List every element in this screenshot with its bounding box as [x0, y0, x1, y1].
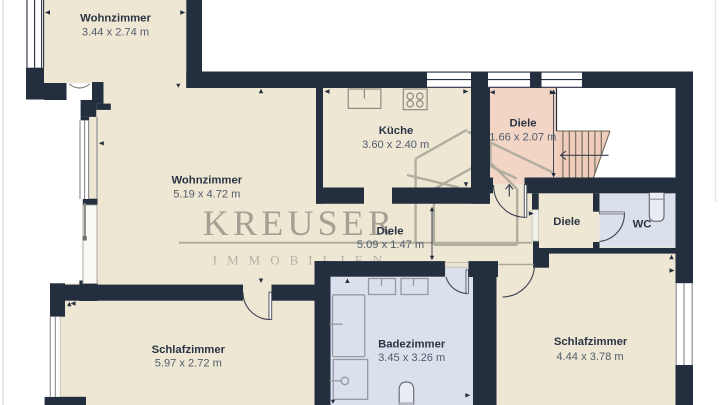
svg-text:5.97 x 2.72 m: 5.97 x 2.72 m: [155, 357, 222, 369]
svg-text:WC: WC: [633, 219, 652, 231]
svg-text:5.19 x 4.72 m: 5.19 x 4.72 m: [173, 189, 240, 201]
svg-text:Schlafzimmer: Schlafzimmer: [152, 344, 226, 356]
svg-text:KREUSER: KREUSER: [203, 203, 396, 243]
svg-text:3.44 x 2.74 m: 3.44 x 2.74 m: [82, 27, 149, 39]
svg-text:Wohnzimmer: Wohnzimmer: [80, 13, 151, 25]
svg-text:5.09 x 1.47 m: 5.09 x 1.47 m: [357, 239, 424, 251]
svg-text:Wohnzimmer: Wohnzimmer: [171, 175, 242, 187]
svg-text:4.44 x 3.78 m: 4.44 x 3.78 m: [556, 351, 623, 363]
svg-text:Diele: Diele: [553, 216, 580, 228]
svg-text:Schlafzimmer: Schlafzimmer: [554, 336, 628, 348]
svg-text:Diele: Diele: [509, 118, 536, 130]
svg-text:Diele: Diele: [376, 226, 403, 238]
svg-text:3.60 x 2.40 m: 3.60 x 2.40 m: [362, 139, 429, 151]
svg-text:Küche: Küche: [379, 125, 414, 137]
svg-text:Badezimmer: Badezimmer: [378, 338, 446, 350]
svg-text:3.45 x 3.26 m: 3.45 x 3.26 m: [378, 352, 445, 364]
svg-text:1.66 x 2.07 m: 1.66 x 2.07 m: [489, 132, 556, 144]
